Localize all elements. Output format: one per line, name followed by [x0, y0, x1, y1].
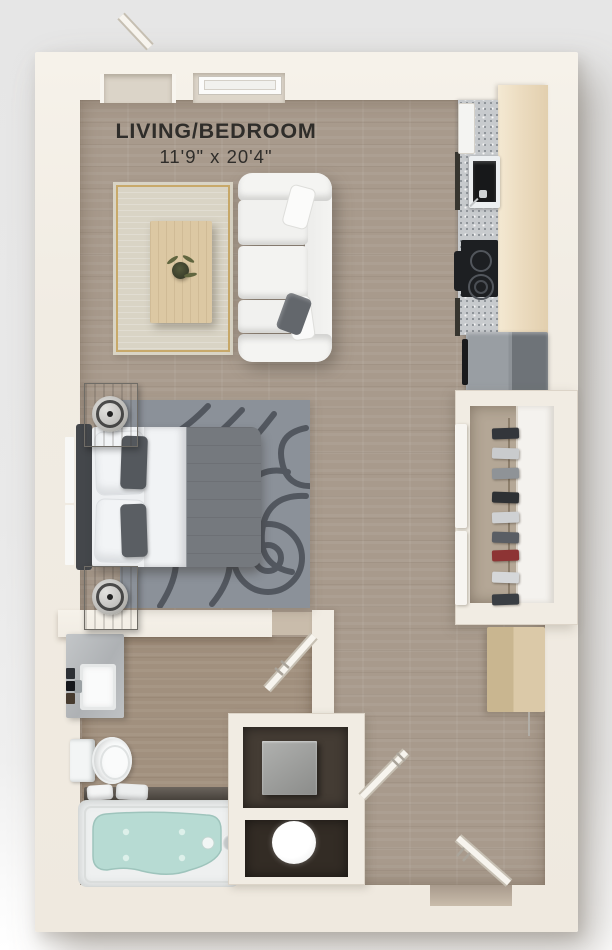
kitchen-upper-cabinets: [498, 85, 548, 333]
kitchen-appliance: [458, 103, 475, 154]
sofa-armrest: [238, 334, 332, 362]
vanity-sink-icon: [80, 664, 116, 710]
hanging-clothes-item: [492, 572, 519, 584]
refrigerator-icon: [466, 332, 548, 398]
washer-icon: [272, 821, 316, 864]
bed-duvet: [184, 427, 261, 567]
cooktop-controls: [454, 251, 462, 291]
hanging-clothes-item: [492, 468, 519, 480]
bathtub-water: [90, 810, 226, 876]
desk-cable: [528, 712, 530, 736]
dryer-cabinet-icon: [262, 741, 317, 795]
counter-edge: [455, 298, 460, 336]
bathroom-wall: [312, 610, 334, 714]
room-label: LIVING/BEDROOM: [88, 119, 344, 144]
toiletries: [66, 668, 75, 679]
hanging-clothes-item: [492, 550, 519, 562]
refrigerator-handle: [462, 339, 468, 385]
bathroom-door-threshold: [272, 612, 312, 635]
closet-sliding-panel: [516, 406, 554, 603]
wall-alcove: [100, 74, 176, 103]
window-pane: [204, 80, 276, 90]
closet-door-panel: [455, 424, 467, 528]
hanging-clothes-item: [492, 492, 519, 504]
bed-accent-pillow: [120, 504, 148, 558]
closet-rod: [508, 418, 510, 598]
kitchen-faucet-icon: [479, 190, 487, 198]
towel: [116, 783, 149, 801]
hanging-clothes-item: [492, 532, 519, 544]
lamp-center: [107, 594, 113, 600]
vanity-faucet-icon: [74, 680, 82, 693]
hanging-clothes-item: [492, 448, 519, 460]
towel: [87, 784, 114, 801]
wall-trim: [65, 437, 74, 503]
bed-folded-sheet: [144, 427, 186, 567]
wall-trim: [65, 505, 74, 565]
cooktop-burner-inner: [474, 280, 488, 294]
balcony-door-icon: [121, 16, 150, 47]
hanging-clothes-item: [492, 512, 519, 524]
room-dimensions: 11'9" x 20'4": [88, 146, 344, 168]
sofa-armrest: [238, 173, 332, 201]
toiletries: [66, 693, 75, 704]
sofa-cushion: [238, 246, 308, 299]
floorplan-canvas: LIVING/BEDROOM 11'9" x 20'4": [0, 0, 612, 950]
counter-edge: [455, 152, 460, 210]
hanging-clothes-item: [492, 594, 519, 606]
cooktop-burner: [470, 250, 492, 272]
desk-icon: [487, 627, 545, 712]
toiletries: [66, 681, 75, 691]
entry-door-threshold: [430, 885, 512, 906]
toilet-seat: [100, 745, 130, 780]
lamp-center: [107, 411, 113, 417]
closet-door-panel: [455, 531, 467, 605]
hanging-clothes-item: [492, 428, 519, 440]
